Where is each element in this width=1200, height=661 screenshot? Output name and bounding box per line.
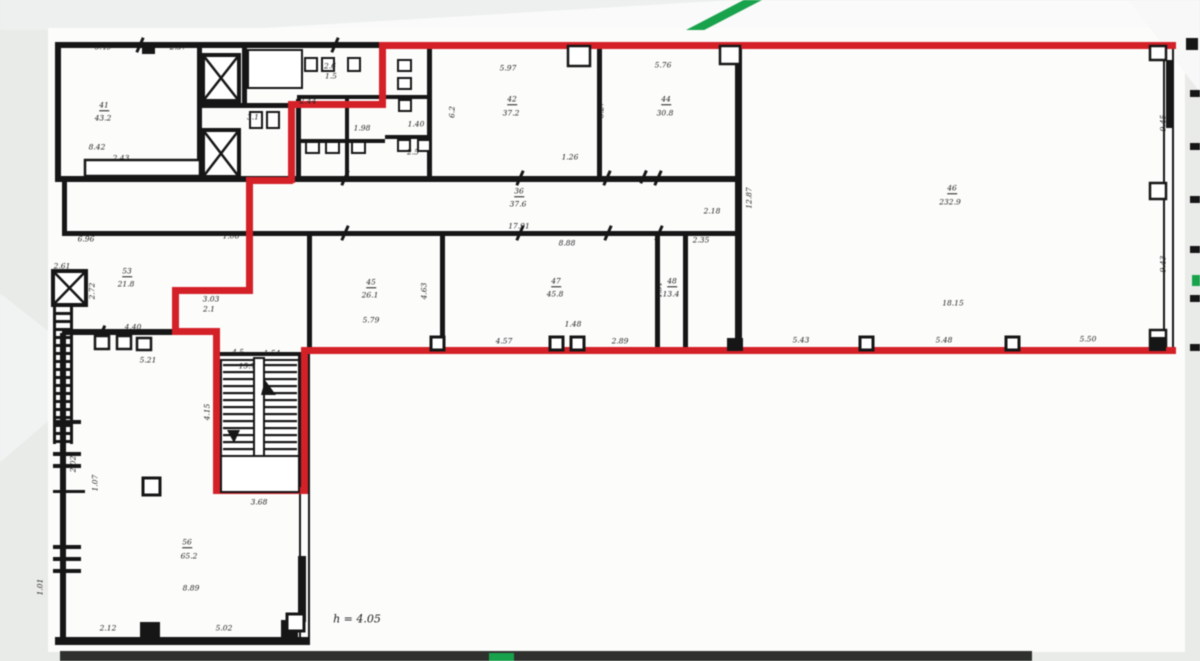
dimension-label: 2.12 bbox=[100, 624, 117, 632]
dimension-label: 2.43 bbox=[113, 154, 130, 162]
dimension-label: 2.89 bbox=[612, 337, 629, 345]
dimension-label: 6.96 bbox=[78, 235, 95, 243]
bottom-dark-band bbox=[60, 651, 1032, 661]
dimension-label: 9.45 bbox=[1159, 115, 1167, 132]
dimension-label: 1.01 bbox=[36, 579, 44, 596]
dimension-label: 5.49 bbox=[95, 43, 112, 51]
dimension-label: 1.06 bbox=[223, 232, 240, 240]
dimension-label: 2.18 bbox=[704, 207, 721, 215]
dimension-label: 30.8 bbox=[657, 109, 674, 117]
dimension-label: 5.21 bbox=[140, 356, 157, 364]
dimension-label: 2.6 bbox=[324, 62, 336, 70]
dimension-label: 18.15 bbox=[942, 299, 963, 307]
dimension-label: 2.02 bbox=[69, 456, 77, 473]
dimension-label: 13.4 bbox=[663, 290, 680, 298]
dimension-label: 12.87 bbox=[745, 187, 753, 208]
dimension-label: 1.5 bbox=[325, 72, 337, 80]
dimension-label: 2.61 bbox=[54, 262, 71, 270]
dimension-label: 65.2 bbox=[181, 552, 198, 560]
dimension-label: 2.5 bbox=[407, 148, 419, 156]
dimension-label: 1.07 bbox=[91, 475, 99, 492]
dimension-label: 3.68 bbox=[251, 498, 268, 506]
dimension-label: 5.48 bbox=[936, 336, 953, 344]
dimension-label: 2.37 bbox=[170, 43, 187, 51]
dimension-label: 43.2 bbox=[95, 114, 112, 122]
ceiling-height-note: h = 4.05 bbox=[333, 614, 381, 625]
dimension-label: 21.8 bbox=[118, 280, 135, 288]
dimension-label: 3.03 bbox=[203, 295, 220, 303]
dimension-label: 6.2 bbox=[448, 106, 456, 118]
dimension-label: 44 bbox=[661, 95, 671, 105]
dimension-label: 1.26 bbox=[562, 153, 579, 161]
dimension-label: 42 bbox=[507, 95, 517, 105]
dimension-label: 1.54 bbox=[264, 349, 281, 357]
dimension-label: 2.1 bbox=[203, 305, 215, 313]
dimension-label: 5.02 bbox=[216, 624, 233, 632]
dimension-label: 1.40 bbox=[408, 120, 425, 128]
dimension-label: 4.63 bbox=[420, 283, 428, 300]
dimension-label: 37.6 bbox=[510, 200, 527, 208]
dimension-label: 2.72 bbox=[88, 283, 96, 300]
dimension-label: 41 bbox=[99, 101, 109, 111]
dimension-label: 5.50 bbox=[1080, 335, 1097, 343]
dimension-label: 4.51 bbox=[655, 282, 663, 299]
dimension-label: 17.91 bbox=[508, 222, 529, 230]
dimension-label: 4.5 bbox=[232, 348, 244, 356]
dimension-label: 15.7 bbox=[239, 362, 256, 370]
dimension-label: 4.40 bbox=[125, 323, 142, 331]
dimension-label: 45 bbox=[366, 278, 376, 288]
dimension-label: 1.98 bbox=[354, 124, 371, 132]
dimension-label: 8.42 bbox=[89, 143, 106, 151]
dimension-label: 232.9 bbox=[939, 198, 960, 206]
dimension-label: 2.35 bbox=[693, 236, 710, 244]
dimension-label: 26.1 bbox=[362, 291, 379, 299]
dimension-label: 8.88 bbox=[559, 239, 576, 247]
dimension-label: 47 bbox=[551, 277, 561, 287]
dimension-label: 2.44 bbox=[300, 97, 317, 105]
dimension-label: 56 bbox=[182, 538, 192, 548]
dimension-label: 5.97 bbox=[500, 64, 517, 72]
dimension-label: 53 bbox=[122, 267, 132, 277]
green-watermark-bottom bbox=[489, 653, 514, 661]
dimension-label: 9.43 bbox=[1159, 256, 1167, 273]
dimension-label: 3.1 bbox=[247, 113, 259, 121]
dimension-label: 4.57 bbox=[496, 337, 513, 345]
green-watermark-right bbox=[1192, 275, 1200, 286]
dimension-label: 5.79 bbox=[363, 316, 380, 324]
dimension-label: 48 bbox=[667, 277, 677, 287]
dimension-label: 5.76 bbox=[655, 61, 672, 69]
floorplan-page: 5.492.374143.28.422.432.61.53.12.441.981… bbox=[0, 0, 1200, 661]
dimension-label: 5.43 bbox=[793, 336, 810, 344]
dimension-label: 1.48 bbox=[565, 320, 582, 328]
dimension-label: 6.27 bbox=[597, 102, 605, 119]
dimension-label: 45.8 bbox=[547, 290, 564, 298]
dimension-label: 37.2 bbox=[503, 109, 520, 117]
dimension-label: 46 bbox=[947, 184, 957, 194]
dimension-label: 36 bbox=[514, 187, 524, 197]
dimension-label: 8.89 bbox=[183, 584, 200, 592]
dimension-labels-layer: 5.492.374143.28.422.432.61.53.12.441.981… bbox=[0, 0, 1200, 661]
dimension-label: 4.15 bbox=[203, 404, 211, 421]
